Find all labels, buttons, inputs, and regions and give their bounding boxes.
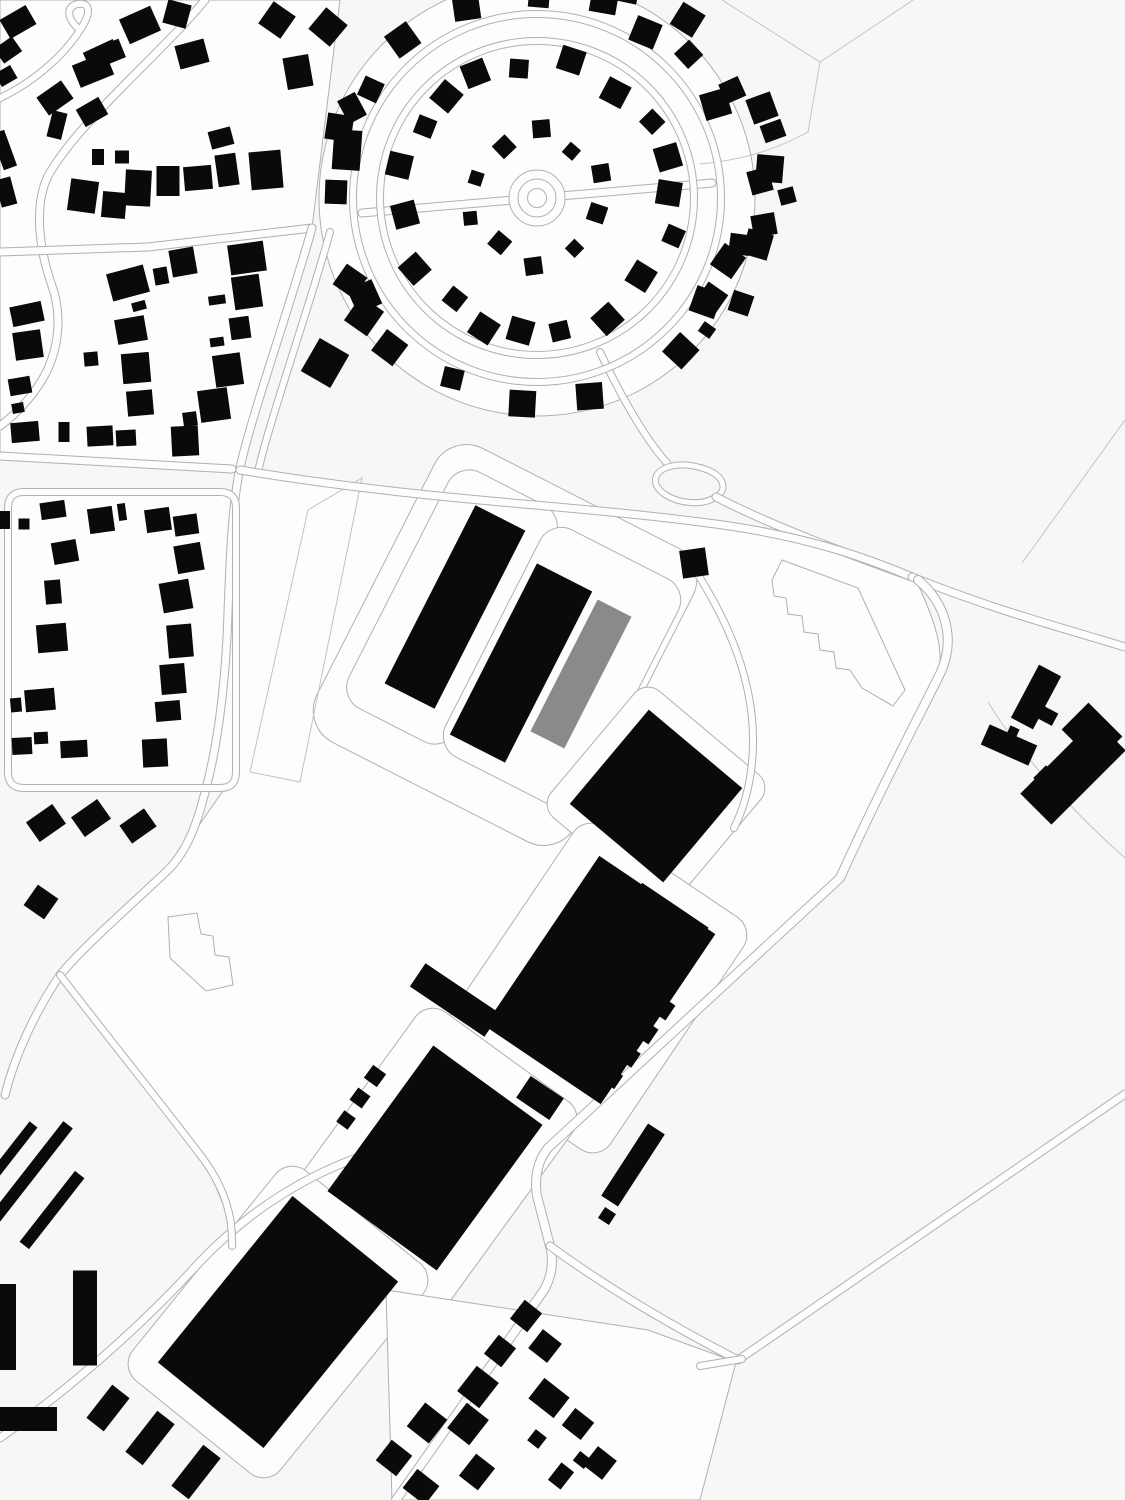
building [227, 241, 267, 276]
building [121, 352, 152, 384]
roundabout-circle [509, 170, 565, 226]
building [19, 519, 30, 530]
building [87, 506, 115, 534]
building [34, 732, 49, 745]
estate-house [575, 382, 604, 411]
building [36, 623, 68, 654]
building [101, 191, 127, 219]
building [214, 153, 239, 188]
building [59, 422, 70, 442]
building [114, 315, 148, 345]
building [115, 151, 129, 164]
building [0, 1284, 16, 1370]
building [24, 688, 56, 713]
site-plan-map [0, 0, 1125, 1500]
building [248, 150, 283, 191]
building [168, 247, 197, 278]
building [159, 663, 187, 695]
building [166, 623, 194, 658]
building [0, 1407, 57, 1431]
building [11, 402, 25, 414]
building [173, 542, 204, 574]
building [197, 387, 231, 423]
building [212, 352, 244, 388]
building [67, 178, 99, 214]
building [159, 579, 194, 614]
building [92, 149, 104, 165]
building [173, 513, 200, 536]
building [60, 740, 88, 758]
estate-house [324, 112, 354, 142]
building [171, 425, 200, 456]
building [144, 507, 172, 533]
building [44, 579, 62, 604]
building [12, 737, 33, 755]
building [126, 389, 154, 416]
building [142, 738, 168, 767]
building [124, 169, 152, 206]
building [155, 700, 182, 722]
estate-house [755, 154, 784, 183]
building [51, 539, 79, 565]
building [153, 266, 170, 285]
estate-house [532, 119, 551, 138]
building [10, 421, 40, 443]
building [157, 166, 180, 196]
estate-house [451, 0, 481, 22]
building [679, 547, 709, 578]
building [183, 165, 213, 191]
estate-house [508, 390, 536, 418]
estate-house [509, 59, 529, 79]
building [86, 425, 113, 446]
building [0, 511, 10, 529]
site-plan-canvas [0, 0, 1125, 1500]
estate-house [524, 256, 544, 276]
building [229, 316, 252, 341]
building [282, 54, 313, 90]
building [39, 500, 66, 520]
estate-house [655, 179, 683, 207]
building [325, 180, 348, 205]
estate-house [463, 211, 478, 226]
building [83, 351, 98, 366]
building [10, 698, 22, 713]
building [116, 429, 137, 446]
building [12, 329, 44, 361]
building [231, 274, 263, 311]
building [182, 411, 198, 427]
estate-house [591, 163, 611, 183]
building [73, 1271, 97, 1366]
